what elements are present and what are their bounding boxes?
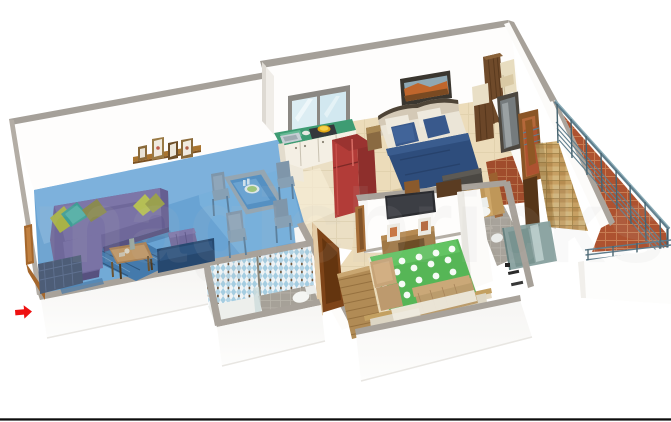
svg-text:magicbricks: magicbricks — [33, 168, 668, 285]
